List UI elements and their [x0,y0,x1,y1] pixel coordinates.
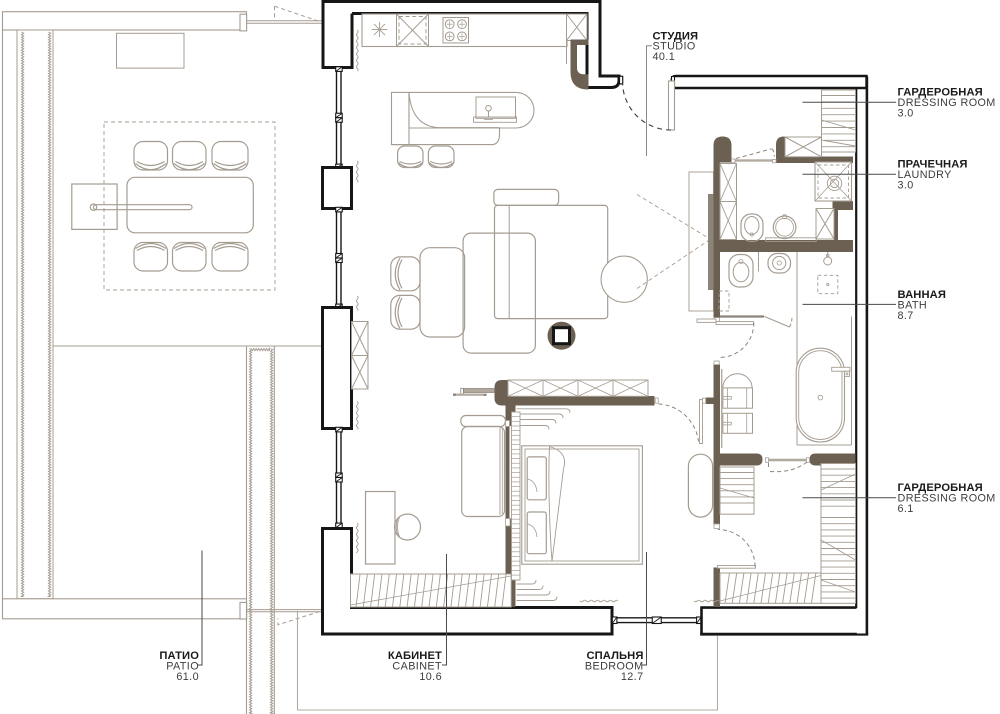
svg-text:61.0: 61.0 [176,671,199,683]
svg-text:12.7: 12.7 [621,671,644,683]
svg-text:10.6: 10.6 [419,671,442,683]
svg-text:6.1: 6.1 [898,503,914,515]
svg-text:3.0: 3.0 [898,108,914,120]
svg-text:40.1: 40.1 [653,51,676,63]
svg-text:3.0: 3.0 [898,180,914,192]
svg-text:8.7: 8.7 [898,310,914,322]
